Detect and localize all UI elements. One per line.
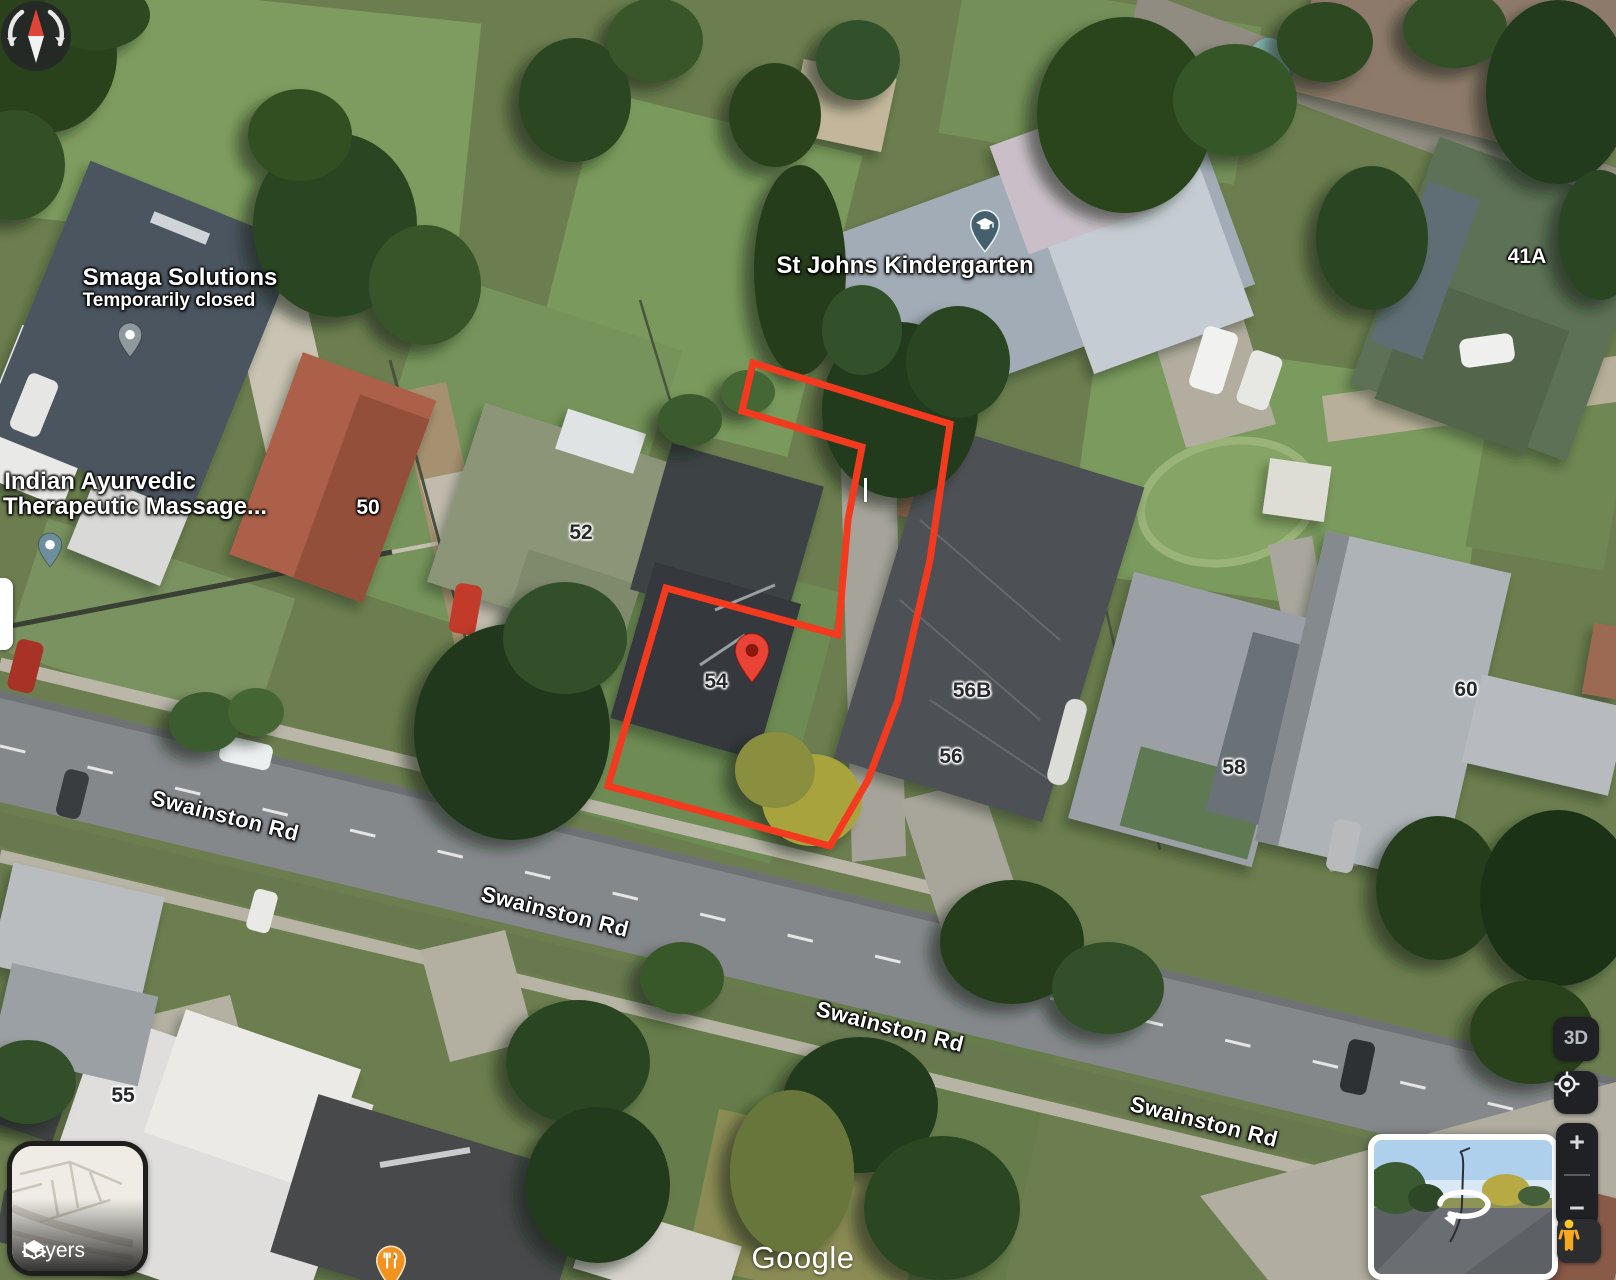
3d-label: 3D <box>1564 1028 1588 1050</box>
kindergarten-education-pin-icon[interactable] <box>969 209 1001 253</box>
zoom-in-button[interactable]: + <box>1556 1129 1598 1155</box>
side-panel-collapse-tab[interactable] <box>0 578 13 650</box>
smaga-place-pin-icon[interactable] <box>117 322 143 358</box>
street-view-preview[interactable] <box>1368 1134 1558 1280</box>
house-number-54: 54 <box>704 670 727 694</box>
house-number-56: 56 <box>939 745 962 769</box>
pegman-button[interactable] <box>1557 1219 1601 1263</box>
house-number-60: 60 <box>1454 678 1477 702</box>
compass-icon[interactable] <box>0 0 72 72</box>
poi-status-smaga: Temporarily closed <box>83 290 256 312</box>
house-number-58: 58 <box>1222 756 1245 780</box>
house-number-52: 52 <box>569 521 592 545</box>
poi-label-ayurvedic-line2[interactable]: Therapeutic Massage... <box>3 493 267 521</box>
zoom-divider <box>1564 1174 1590 1176</box>
layers-button[interactable]: Layers <box>7 1141 148 1276</box>
layers-diamond-icon <box>22 1239 46 1261</box>
measurement-tick <box>864 478 867 502</box>
google-watermark: Google <box>752 1240 855 1276</box>
house-number-55: 55 <box>111 1084 134 1108</box>
poi-label-smaga[interactable]: Smaga Solutions <box>83 264 278 292</box>
pegman-icon <box>1557 1219 1581 1251</box>
zoom-control: + − <box>1556 1123 1598 1227</box>
satellite-imagery <box>0 0 1616 1280</box>
crosshair-icon <box>1554 1071 1580 1097</box>
street-view-thumbnail-image <box>1374 1140 1552 1274</box>
poi-label-kindergarten[interactable]: St Johns Kindergarten <box>776 252 1033 280</box>
restaurant-dining-pin-icon[interactable] <box>375 1245 407 1280</box>
destination-red-pin-icon[interactable] <box>733 632 771 684</box>
my-location-button[interactable] <box>1554 1071 1598 1114</box>
house-number-56b: 56B <box>953 679 992 703</box>
poi-label-ayurvedic-line1[interactable]: Indian Ayurvedic <box>4 468 196 496</box>
google-maps-satellite-view: Smaga Solutions Temporarily closed India… <box>0 0 1616 1280</box>
house-number-41a: 41A <box>1508 245 1547 269</box>
house-number-50: 50 <box>356 496 379 520</box>
3d-toggle-button[interactable]: 3D <box>1553 1017 1599 1061</box>
zoom-out-button[interactable]: − <box>1556 1195 1598 1221</box>
ayurvedic-place-pin-icon[interactable] <box>37 532 63 568</box>
